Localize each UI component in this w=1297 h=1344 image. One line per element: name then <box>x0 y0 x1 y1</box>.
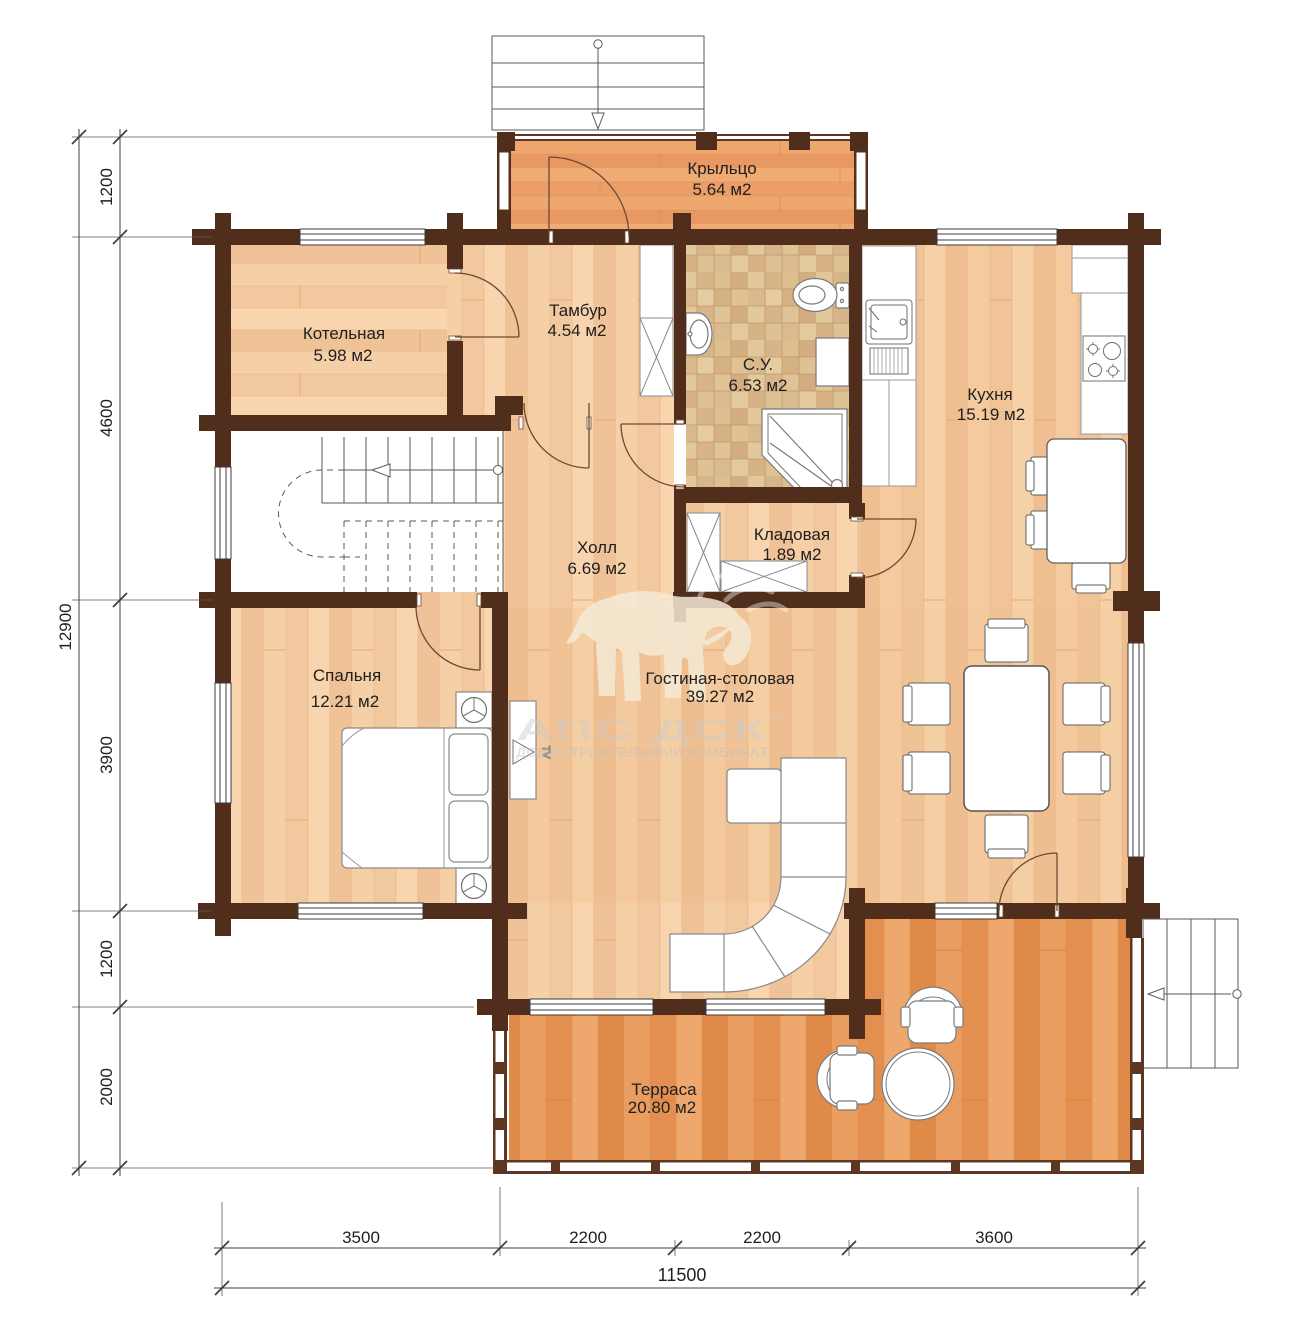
svg-text:АПС ДСК: АПС ДСК <box>516 712 768 747</box>
svg-text:Тамбур: Тамбур <box>549 301 607 320</box>
svg-text:20.80 м2: 20.80 м2 <box>628 1098 696 1117</box>
svg-text:6.53 м2: 6.53 м2 <box>729 376 788 395</box>
svg-text:3900: 3900 <box>97 736 116 774</box>
svg-text:12.21 м2: 12.21 м2 <box>311 692 379 711</box>
svg-text:1.89 м2: 1.89 м2 <box>763 545 822 564</box>
svg-text:5.98 м2: 5.98 м2 <box>314 346 373 365</box>
svg-text:6.69 м2: 6.69 м2 <box>568 559 627 578</box>
svg-text:12900: 12900 <box>56 603 75 650</box>
svg-text:Спальня: Спальня <box>313 666 381 685</box>
svg-text:Гостиная-столовая: Гостиная-столовая <box>645 669 794 688</box>
svg-text:Крыльцо: Крыльцо <box>687 159 756 178</box>
svg-text:11500: 11500 <box>658 1265 707 1285</box>
svg-text:Терраса: Терраса <box>631 1080 697 1099</box>
svg-text:4600: 4600 <box>97 399 116 437</box>
svg-text:1200: 1200 <box>97 168 116 206</box>
svg-text:™: ™ <box>772 715 783 727</box>
svg-text:3600: 3600 <box>975 1228 1013 1247</box>
svg-text:2000: 2000 <box>97 1068 116 1106</box>
svg-text:2200: 2200 <box>743 1228 781 1247</box>
svg-text:5.64 м2: 5.64 м2 <box>693 180 752 199</box>
svg-text:Кухня: Кухня <box>967 385 1013 404</box>
svg-text:3500: 3500 <box>342 1228 380 1247</box>
svg-text:4.54 м2: 4.54 м2 <box>548 321 607 340</box>
svg-text:Кладовая: Кладовая <box>754 525 830 544</box>
svg-text:1200: 1200 <box>97 940 116 978</box>
svg-text:39.27 м2: 39.27 м2 <box>686 687 754 706</box>
svg-text:Котельная: Котельная <box>303 324 385 343</box>
svg-text:С.У.: С.У. <box>743 355 773 374</box>
svg-text:15.19 м2: 15.19 м2 <box>957 405 1025 424</box>
svg-text:2200: 2200 <box>569 1228 607 1247</box>
svg-text:ДОМОСТРОИТЕЛЬНЫЙ КОМБИНАТ: ДОМОСТРОИТЕЛЬНЫЙ КОМБИНАТ <box>516 745 769 760</box>
svg-text:Холл: Холл <box>577 538 617 557</box>
